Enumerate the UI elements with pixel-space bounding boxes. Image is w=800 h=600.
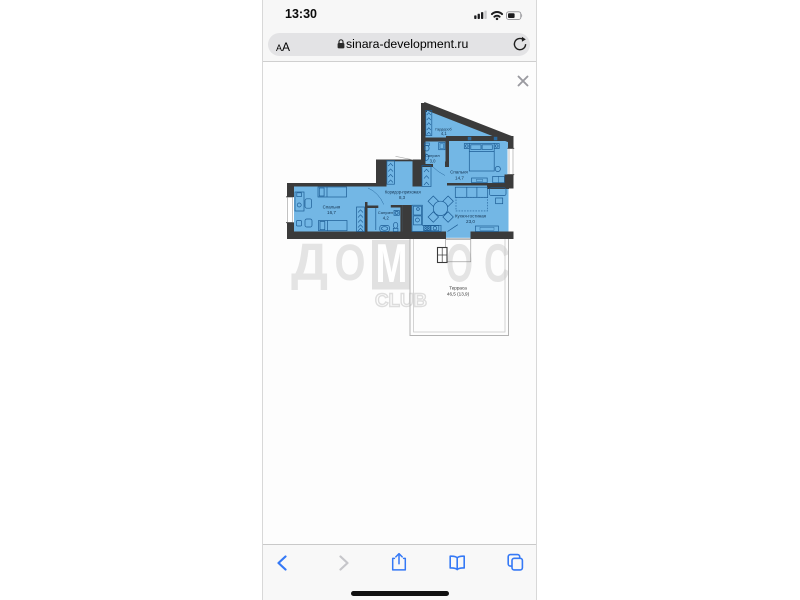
svg-text:4,1: 4,1 bbox=[441, 131, 447, 136]
svg-text:О: О bbox=[446, 234, 473, 294]
svg-text:14,7: 14,7 bbox=[455, 175, 464, 180]
svg-text:С: С bbox=[484, 234, 510, 294]
svg-text:23,0: 23,0 bbox=[466, 219, 475, 224]
svg-text:Д: Д bbox=[291, 234, 328, 292]
svg-text:Кухня-гостиная: Кухня-гостиная bbox=[455, 214, 487, 219]
svg-text:46,5 (13,9): 46,5 (13,9) bbox=[447, 291, 470, 296]
svg-text:М: М bbox=[376, 232, 408, 294]
svg-text:16,7: 16,7 bbox=[327, 210, 336, 215]
svg-text:Санузел: Санузел bbox=[378, 210, 393, 215]
svg-text:4,2: 4,2 bbox=[383, 216, 390, 221]
svg-text:Спальня: Спальня bbox=[450, 170, 468, 175]
svg-text:3,0: 3,0 bbox=[430, 158, 436, 163]
svg-text:CLUB: CLUB bbox=[375, 290, 427, 311]
svg-text:О: О bbox=[335, 234, 366, 291]
svg-text:Терраса: Терраса bbox=[449, 286, 467, 291]
svg-text:Коридор-прихожая: Коридор-прихожая bbox=[385, 190, 421, 195]
svg-text:8,3: 8,3 bbox=[399, 195, 406, 200]
svg-text:Спальня: Спальня bbox=[323, 205, 341, 210]
